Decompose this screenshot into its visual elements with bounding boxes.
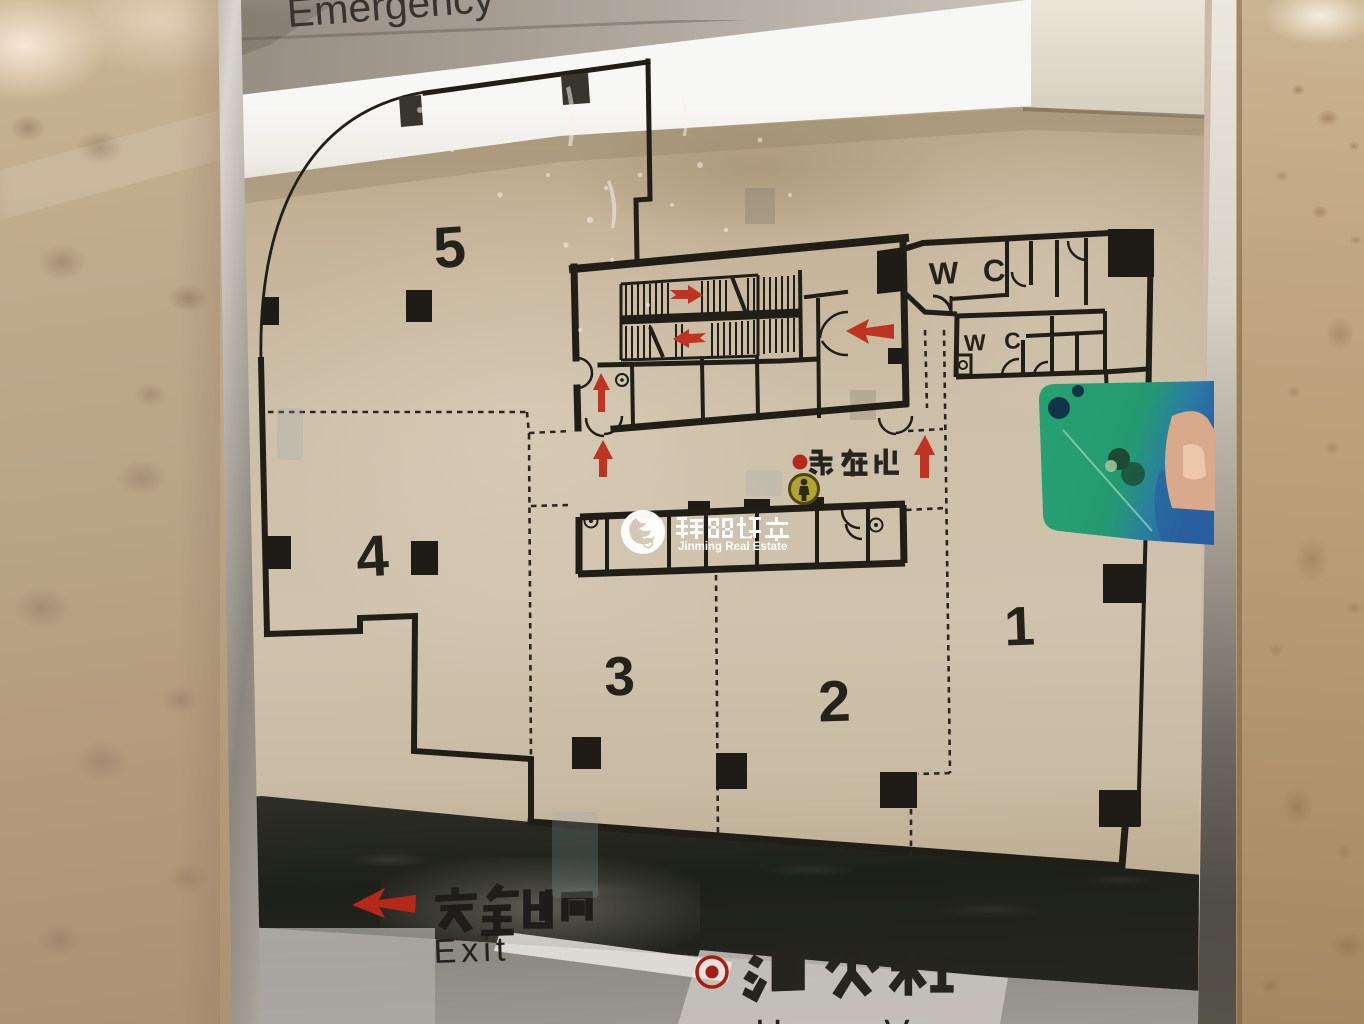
svg-text:1: 1 (1003, 595, 1036, 658)
svg-text:W C: W C (928, 252, 1014, 291)
svg-text:4: 4 (355, 523, 391, 590)
svg-text:Emergency: Emergency (285, 0, 496, 36)
svg-text:Jinming Real Estate: Jinming Real Estate (678, 541, 787, 553)
svg-text:5: 5 (431, 214, 468, 281)
svg-text:2: 2 (817, 668, 852, 734)
svg-text:Exit: Exit (433, 930, 511, 971)
svg-text:3: 3 (603, 645, 636, 708)
svg-text:W C: W C (963, 327, 1027, 356)
svg-text:Hose V: Hose V (755, 1013, 916, 1024)
